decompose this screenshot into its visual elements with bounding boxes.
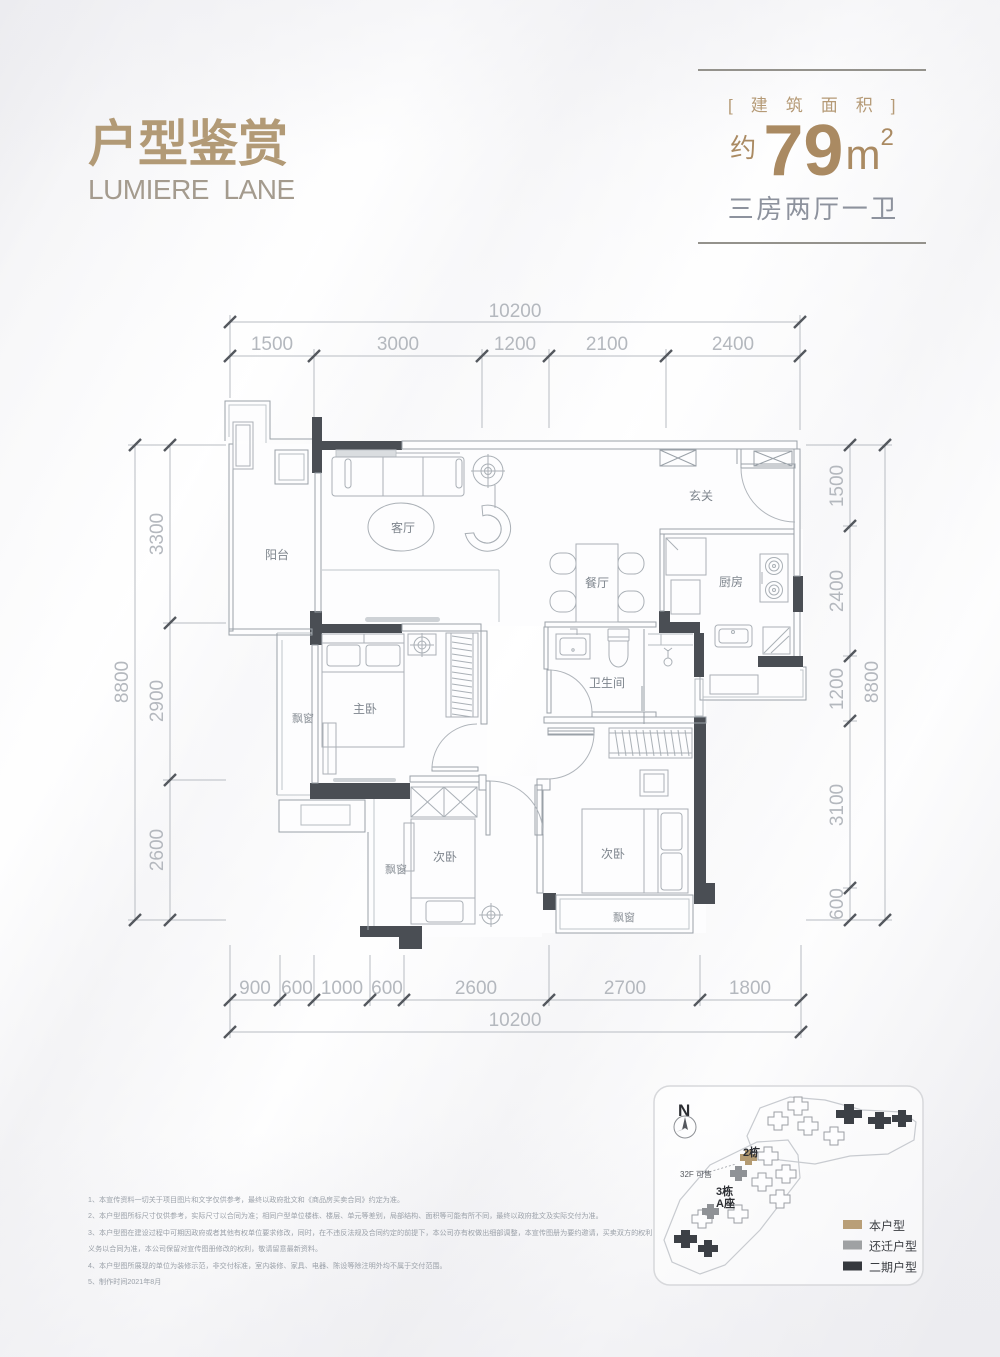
svg-text:2100: 2100 — [586, 334, 628, 355]
svg-text:2400: 2400 — [712, 334, 754, 355]
svg-text:1200: 1200 — [827, 668, 848, 710]
svg-text:1500: 1500 — [251, 334, 293, 355]
svg-text:客厅: 客厅 — [391, 520, 415, 535]
svg-text:600: 600 — [371, 978, 403, 999]
svg-text:10200: 10200 — [489, 1010, 542, 1031]
svg-text:3300: 3300 — [147, 513, 168, 555]
svg-text:900: 900 — [239, 978, 271, 999]
svg-text:厨房: 厨房 — [719, 574, 743, 589]
svg-text:玄关: 玄关 — [689, 488, 713, 503]
svg-text:1800: 1800 — [729, 978, 771, 999]
svg-text:卫生间: 卫生间 — [589, 676, 625, 690]
svg-text:飘窗: 飘窗 — [613, 910, 635, 924]
svg-text:餐厅: 餐厅 — [585, 575, 609, 590]
svg-text:飘窗: 飘窗 — [385, 862, 407, 876]
svg-text:还迁户型: 还迁户型 — [869, 1239, 917, 1254]
svg-text:次卧: 次卧 — [601, 847, 625, 861]
svg-text:2400: 2400 — [827, 570, 848, 612]
svg-text:600: 600 — [281, 978, 313, 999]
svg-text:1200: 1200 — [494, 334, 536, 355]
svg-text:A座: A座 — [716, 1196, 735, 1210]
svg-text:1000: 1000 — [321, 978, 363, 999]
svg-text:3100: 3100 — [827, 784, 848, 826]
svg-text:主卧: 主卧 — [353, 702, 377, 716]
svg-text:2700: 2700 — [604, 978, 646, 999]
svg-text:次卧: 次卧 — [433, 850, 457, 864]
svg-text:2900: 2900 — [147, 680, 168, 722]
svg-text:2600: 2600 — [455, 978, 497, 999]
svg-text:阳台: 阳台 — [265, 547, 289, 562]
svg-text:3000: 3000 — [377, 334, 419, 355]
svg-text:二期户型: 二期户型 — [869, 1260, 917, 1275]
svg-text:10200: 10200 — [489, 301, 542, 322]
svg-text:32F 可售: 32F 可售 — [680, 1169, 712, 1179]
svg-text:3栋: 3栋 — [716, 1184, 733, 1198]
svg-text:8800: 8800 — [112, 661, 133, 703]
svg-text:本户型: 本户型 — [869, 1218, 905, 1233]
svg-text:8800: 8800 — [862, 661, 883, 703]
svg-text:飘窗: 飘窗 — [292, 711, 314, 725]
svg-text:2600: 2600 — [147, 829, 168, 871]
svg-text:1500: 1500 — [827, 465, 848, 507]
